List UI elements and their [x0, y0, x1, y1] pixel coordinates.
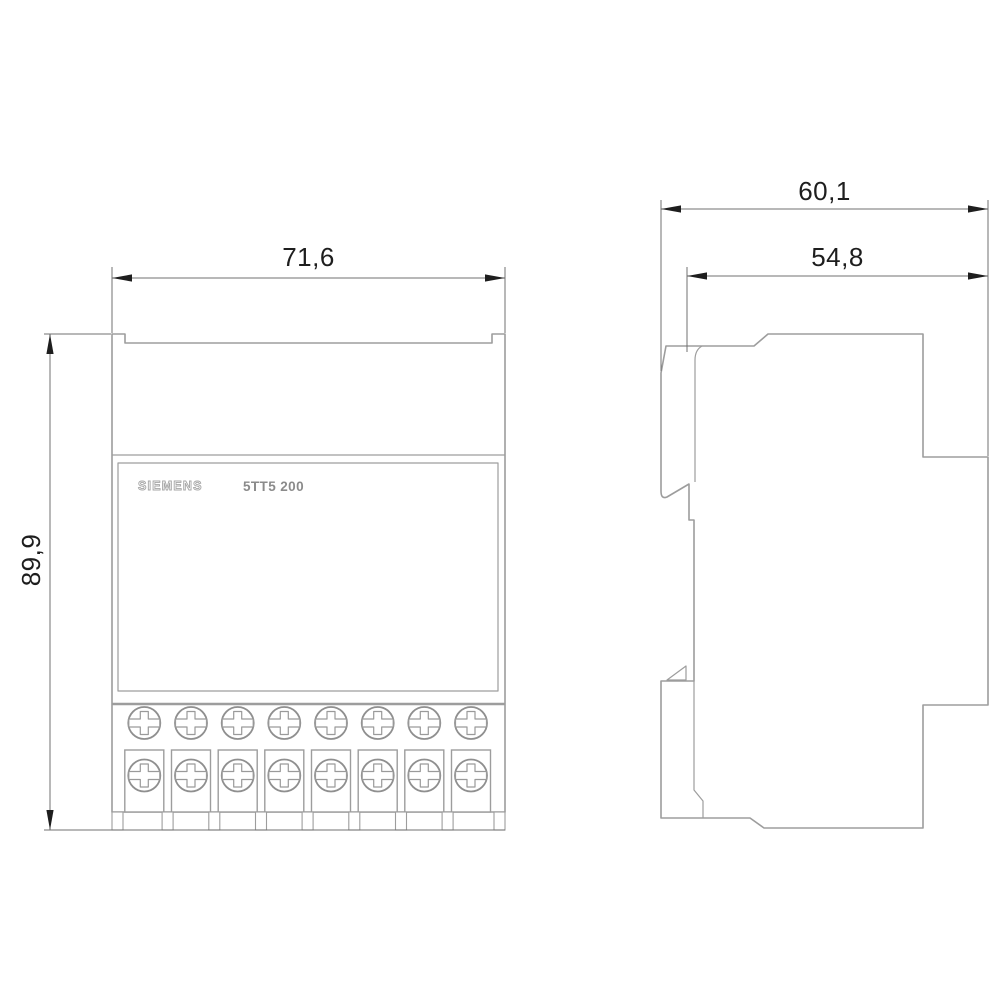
mounting-foot: [442, 812, 453, 830]
terminal-screw: [455, 707, 487, 739]
front-view-outline: [112, 334, 505, 812]
mounting-foot: [162, 812, 173, 830]
dimension-value-height: 89,9: [16, 534, 46, 587]
drawing-canvas: SIEMENS 5TT5 200: [0, 0, 1000, 1000]
dimension-value-body-depth: 54,8: [811, 242, 864, 272]
dimension-arrow: [46, 810, 53, 830]
terminal-screw: [175, 707, 207, 739]
din-clip-latch: [667, 666, 686, 680]
terminal-screw: [455, 760, 487, 792]
terminal-screw: [362, 760, 394, 792]
dimension-side-overall-depth: 60,1: [661, 176, 988, 456]
dimension-arrow: [661, 205, 681, 212]
mounting-foot: [209, 812, 220, 830]
mounting-foot: [112, 812, 123, 830]
model-label: 5TT5 200: [243, 479, 304, 494]
front-view: SIEMENS 5TT5 200: [112, 334, 505, 830]
terminal-screw: [315, 707, 347, 739]
mounting-foot: [349, 812, 360, 830]
terminal-screw: [222, 760, 254, 792]
mounting-foot: [396, 812, 407, 830]
terminal-screw: [315, 760, 347, 792]
dimension-arrow: [485, 274, 505, 281]
terminal-screw: [362, 707, 394, 739]
mounting-foot: [302, 812, 313, 830]
terminal-screws-bottom-row: [128, 760, 487, 792]
dimension-arrow: [968, 272, 988, 279]
dimension-arrow: [687, 272, 707, 279]
dimension-arrow: [968, 205, 988, 212]
side-front-face-upper-edge: [695, 346, 702, 482]
mounting-foot: [256, 812, 267, 830]
terminal-screws-top-row: [128, 707, 487, 739]
terminal-screw: [408, 760, 440, 792]
side-view: [661, 334, 988, 828]
dimension-arrow: [112, 274, 132, 281]
dimension-arrow: [46, 334, 53, 354]
terminal-screw: [268, 707, 300, 739]
dimension-value-width: 71,6: [282, 242, 335, 272]
brand-label: SIEMENS: [138, 479, 203, 493]
dimension-side-body-depth: 54,8: [687, 242, 988, 352]
mounting-feet: [112, 812, 505, 830]
side-front-face-lower-edge: [694, 681, 703, 818]
terminal-screw: [175, 760, 207, 792]
terminal-screw: [128, 760, 160, 792]
terminal-screw: [268, 760, 300, 792]
dimension-value-overall-depth: 60,1: [798, 176, 851, 206]
terminal-screw: [128, 707, 160, 739]
side-view-outline: [661, 334, 988, 828]
dimension-front-width: 71,6: [112, 242, 505, 333]
terminal-screw: [222, 707, 254, 739]
terminal-screw: [408, 707, 440, 739]
dimensional-drawing: SIEMENS 5TT5 200: [0, 0, 1000, 1000]
mounting-foot: [494, 812, 505, 830]
front-label-panel: [118, 463, 498, 691]
